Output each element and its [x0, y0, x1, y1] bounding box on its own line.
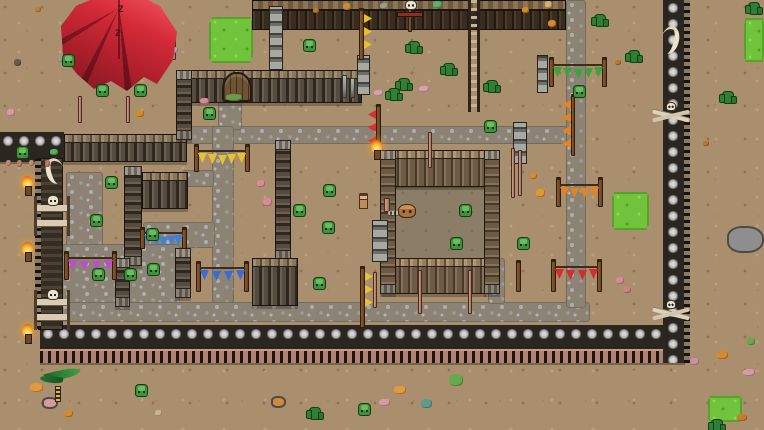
stone-pillar [269, 6, 283, 70]
wall-penwall [484, 150, 500, 294]
torch[interactable] [21, 176, 34, 196]
decor-dot [155, 410, 162, 416]
decor-dot [421, 399, 432, 408]
bone-gate[interactable] [34, 290, 70, 330]
grass-patch [209, 17, 253, 63]
yellow-bunting-flag [198, 153, 207, 163]
goblin[interactable] [322, 221, 335, 234]
skull-icon [666, 300, 676, 309]
banner-pole [598, 177, 603, 207]
decor-dot [690, 358, 699, 365]
wood-pole [511, 148, 515, 198]
cactus [398, 78, 410, 91]
decor-dot [379, 399, 390, 406]
banner-pole [597, 259, 602, 292]
wood-pole [518, 150, 522, 196]
banner-pole [140, 227, 145, 249]
cactus [486, 80, 498, 93]
goblin[interactable] [105, 176, 118, 189]
grass-patch [612, 192, 649, 230]
torch[interactable] [21, 324, 34, 344]
decor-dot [747, 338, 755, 345]
torch[interactable] [370, 140, 383, 160]
goblin[interactable] [62, 54, 75, 67]
decor-dot [45, 160, 50, 167]
decor-dot [29, 160, 34, 166]
cactus [711, 419, 723, 430]
goblin[interactable] [146, 228, 159, 241]
red-bunting-flag [555, 269, 564, 279]
banner-pole [244, 261, 249, 292]
scarecrow-crossbar [397, 12, 423, 17]
goblin[interactable] [484, 120, 497, 133]
banner-pole [64, 251, 69, 280]
cactus [388, 88, 400, 101]
decor-dot [50, 149, 58, 155]
banner-pole [516, 260, 521, 292]
skull-icon [666, 102, 676, 111]
banner-pole [182, 227, 187, 249]
decor-dot [30, 383, 43, 392]
decor-dot [263, 198, 272, 206]
rock [271, 396, 286, 408]
tent[interactable]: ZZ [56, 0, 182, 102]
wall-palisade [275, 140, 291, 260]
banner-pole [551, 259, 556, 292]
decor-dot [522, 7, 529, 13]
banner-pole [112, 251, 117, 280]
decor-dot [200, 98, 209, 104]
decor-dot [703, 141, 709, 146]
goblin[interactable] [92, 268, 105, 281]
stone-pillar [537, 55, 548, 93]
decor-dot [380, 3, 388, 9]
decor-dot [343, 3, 351, 10]
goblin[interactable] [358, 403, 371, 416]
goblin[interactable] [147, 263, 160, 276]
stone-pillar [357, 55, 370, 95]
decor-dot [548, 20, 556, 27]
stone-pillar [372, 220, 388, 262]
decor-dot [545, 1, 552, 8]
chain-post [384, 198, 390, 212]
banner-pole [602, 57, 607, 87]
stem-plant [55, 386, 61, 402]
human-character[interactable] [357, 193, 368, 208]
banner-pole [196, 261, 201, 292]
banner-string [560, 184, 599, 186]
decor-dot [419, 86, 429, 92]
cobble-path [66, 172, 103, 248]
decor-dot [616, 277, 624, 284]
yellow-flagpole-bottom-pennant [365, 272, 373, 281]
wall-penwall [380, 150, 500, 187]
goblin[interactable] [517, 237, 530, 250]
cobble-path [212, 126, 234, 306]
decor-dot [433, 1, 442, 8]
banner-pole [549, 57, 554, 87]
decor-dot [7, 109, 15, 116]
goblin[interactable] [124, 268, 137, 281]
goblin[interactable] [203, 107, 216, 120]
wood-pole [428, 132, 432, 168]
decor-dot [394, 386, 406, 394]
banner-string [553, 64, 603, 66]
flagpole [360, 266, 365, 328]
goblin[interactable] [303, 39, 316, 52]
cactus [594, 14, 606, 27]
tent-seam-mark: Z [115, 30, 120, 39]
goblin[interactable] [459, 204, 472, 217]
wall-palisade [176, 70, 192, 140]
skull-icon [405, 0, 417, 10]
tent-seam-mark: Z [118, 6, 123, 15]
cactus [722, 91, 734, 104]
blue-bunting-flag [200, 270, 209, 280]
penned-creature[interactable] [398, 204, 416, 218]
banner-pole [194, 144, 199, 172]
wood-pole [468, 270, 472, 314]
decor-dot [35, 7, 41, 12]
wall-palisade [175, 248, 191, 298]
banner-string [68, 257, 113, 259]
decor-dot [536, 189, 545, 197]
red-flagpole-pennant [368, 110, 376, 119]
goblin[interactable] [16, 146, 29, 159]
flagpole [376, 104, 381, 144]
decor-dot [717, 351, 728, 359]
decor-dot [737, 414, 747, 421]
wall-palisade [115, 258, 130, 307]
banner-string [555, 266, 598, 268]
decor-dot [136, 110, 144, 117]
cactus [628, 50, 640, 63]
wall-palisade [64, 134, 187, 162]
bone-gate[interactable] [34, 196, 70, 236]
decor-dot [226, 94, 242, 101]
goblin[interactable] [135, 384, 148, 397]
cactus [408, 41, 420, 54]
wood-pole [126, 96, 130, 123]
yellow-flagpole-bottom-pennant [365, 285, 373, 294]
goblin[interactable] [293, 204, 306, 217]
grass-patch [744, 18, 764, 62]
pen-interior [394, 186, 486, 260]
wall-palisade [252, 258, 298, 306]
decor-dot [14, 59, 21, 66]
flagpole [359, 8, 364, 60]
goblin[interactable] [450, 237, 463, 250]
banner-pole [556, 177, 561, 207]
banner-pole [245, 144, 250, 172]
decor-dot [313, 8, 319, 13]
yellow-flagpole-top-pennant [364, 40, 372, 49]
goblin[interactable] [90, 214, 103, 227]
banner-string [198, 150, 246, 152]
wood-post [350, 78, 355, 98]
ladder[interactable] [468, 0, 480, 112]
torch[interactable] [21, 242, 34, 262]
decor-dot [257, 180, 265, 187]
ore-rock [727, 226, 764, 253]
banner-string [200, 267, 245, 269]
wood-pole [373, 272, 377, 308]
wood-pole [78, 96, 82, 123]
decor-dot [623, 287, 631, 293]
decor-dot [64, 410, 73, 417]
decor-dot [530, 173, 537, 179]
green-bunting-flag [553, 67, 562, 77]
game-viewport[interactable]: ZZ [0, 0, 764, 430]
decor-dot [17, 160, 22, 167]
banner-pole [571, 94, 575, 156]
goblin[interactable] [323, 184, 336, 197]
cobble-path [566, 0, 586, 308]
decor-dot [615, 60, 621, 65]
goblin[interactable] [573, 85, 586, 98]
cactus [309, 407, 321, 420]
wood-pole [418, 270, 422, 314]
goblin[interactable] [313, 277, 326, 290]
wall-stonehT [40, 325, 685, 363]
cactus [748, 2, 760, 15]
decor-dot [374, 90, 383, 96]
decor-dot [6, 160, 11, 166]
wall-palisade [142, 172, 188, 209]
decor-dot [449, 374, 463, 386]
goblin[interactable] [134, 84, 147, 97]
wood-post [342, 75, 347, 98]
cactus [443, 63, 455, 76]
wall-palisade [124, 166, 142, 266]
decor-dot [743, 369, 755, 376]
goblin[interactable] [96, 84, 109, 97]
agave-plant [40, 366, 82, 388]
